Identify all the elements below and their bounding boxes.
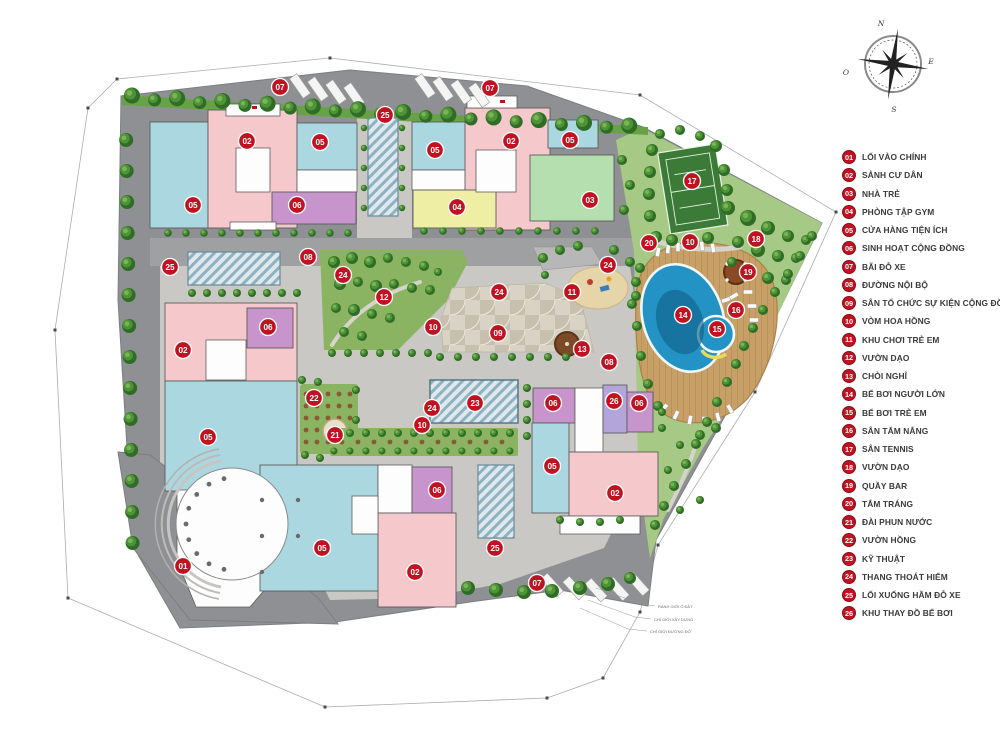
svg-text:01: 01 <box>178 562 188 571</box>
tree-icon <box>436 353 444 361</box>
tree-icon <box>236 229 244 237</box>
svg-text:15: 15 <box>712 325 722 334</box>
plan-marker-16: 16 <box>728 302 745 319</box>
tree-icon <box>122 319 136 333</box>
tree-icon <box>695 131 705 141</box>
legend-number: 02 <box>842 168 856 182</box>
plan-marker-24: 24 <box>424 400 441 417</box>
plan-marker-02: 02 <box>607 485 624 502</box>
tree-icon <box>658 408 666 416</box>
tree-icon <box>352 416 360 424</box>
legend-label: BÃI ĐỖ XE <box>862 262 906 272</box>
svg-text:16: 16 <box>731 306 741 315</box>
legend-item-08: 08ĐƯỜNG NỘI BỘ <box>842 276 1000 294</box>
tree-icon <box>619 205 629 215</box>
tree-icon <box>148 93 161 106</box>
tree-icon <box>399 145 405 151</box>
tree-icon <box>352 386 360 394</box>
legend-label: ĐÀI PHUN NƯỚC <box>862 517 932 527</box>
tree-icon <box>621 118 637 134</box>
plan-marker-21: 21 <box>327 427 344 444</box>
compass-s-label: S <box>891 105 896 114</box>
tree-icon <box>454 353 462 361</box>
tree-icon <box>331 448 338 455</box>
tree-icon <box>545 584 559 598</box>
tree-icon <box>363 448 370 455</box>
tree-icon <box>364 256 376 268</box>
legend-number: 19 <box>842 479 856 493</box>
tree-icon <box>314 378 322 386</box>
plan-marker-02: 02 <box>503 133 520 150</box>
legend-number: 17 <box>842 442 856 456</box>
tree-icon <box>434 268 442 276</box>
legend-number: 22 <box>842 533 856 547</box>
tree-icon <box>477 227 485 235</box>
tree-icon <box>490 353 498 361</box>
legend-label: CHÒI NGHỈ <box>862 371 907 381</box>
tree-icon <box>308 229 316 237</box>
svg-text:07: 07 <box>485 84 495 93</box>
legend-label: VƯỜN DẠO <box>862 462 909 472</box>
plan-marker-13: 13 <box>574 341 591 358</box>
legend-item-07: 07BÃI ĐỖ XE <box>842 258 1000 276</box>
tree-icon <box>573 241 583 251</box>
legend-item-18: 18VƯỜN DẠO <box>842 458 1000 476</box>
legend: 01LỐI VÀO CHÍNH02SẢNH CƯ DÂN03NHÀ TRẺ04P… <box>842 148 1000 623</box>
tree-icon <box>362 429 370 437</box>
tree-icon <box>748 323 758 333</box>
tree-icon <box>214 93 230 109</box>
tree-icon <box>721 184 733 196</box>
tree-icon <box>643 379 653 389</box>
tree-icon <box>643 188 655 200</box>
tree-icon <box>601 577 615 591</box>
tree-icon <box>399 205 405 211</box>
svg-text:24: 24 <box>603 261 613 270</box>
compass-rose: N E S O <box>843 19 934 114</box>
svg-text:09: 09 <box>493 329 503 338</box>
tree-icon <box>691 439 701 449</box>
tree-icon <box>721 201 735 215</box>
plan-marker-05: 05 <box>312 134 329 151</box>
tree-icon <box>644 166 656 178</box>
tree-icon <box>443 448 450 455</box>
tree-icon <box>326 229 334 237</box>
legend-item-19: 19QUẦY BAR <box>842 477 1000 495</box>
tree-icon <box>727 257 737 267</box>
plan-marker-05: 05 <box>200 429 217 446</box>
basement-ramp-south <box>478 465 514 538</box>
svg-text:06: 06 <box>548 399 558 408</box>
tree-icon <box>383 253 393 263</box>
legend-label: KHU THAY ĐỒ BỂ BƠI <box>862 608 953 618</box>
plan-marker-20: 20 <box>641 235 658 252</box>
tree-icon <box>712 397 722 407</box>
tree-icon <box>783 269 793 279</box>
legend-item-01: 01LỐI VÀO CHÍNH <box>842 148 1000 166</box>
tree-icon <box>646 144 658 156</box>
tree-icon <box>526 353 534 361</box>
tree-icon <box>553 227 561 235</box>
tree-icon <box>278 289 286 297</box>
plan-marker-11: 11 <box>564 284 581 301</box>
svg-text:08: 08 <box>604 358 614 367</box>
tree-icon <box>367 309 377 319</box>
plan-marker-24: 24 <box>335 267 352 284</box>
tree-icon <box>401 257 411 267</box>
tree-icon <box>346 252 358 264</box>
legend-item-09: 09SÂN TỔ CHỨC SỰ KIỆN CỘNG ĐỒNG <box>842 294 1000 312</box>
tree-icon <box>666 234 678 246</box>
tree-icon <box>472 353 480 361</box>
legend-item-20: 20TẮM TRÁNG <box>842 495 1000 513</box>
tree-icon <box>193 96 206 109</box>
svg-text:06: 06 <box>292 201 302 210</box>
legend-label: KHU CHƠI TRẺ EM <box>862 335 940 345</box>
compass-n-label: N <box>877 19 885 28</box>
tree-icon <box>531 112 547 128</box>
tree-icon <box>508 353 516 361</box>
tree-icon <box>120 164 134 178</box>
tree-icon <box>491 448 498 455</box>
tree-icon <box>739 341 749 351</box>
tree-icon <box>489 583 503 597</box>
legend-number: 11 <box>842 333 856 347</box>
sun-lounger <box>750 318 759 322</box>
tree-icon <box>328 256 340 268</box>
legend-label: SÂN TỔ CHỨC SỰ KIỆN CỘNG ĐỒNG <box>862 298 1000 308</box>
tree-icon <box>233 289 241 297</box>
svg-text:06: 06 <box>432 486 442 495</box>
tree-icon <box>474 429 482 437</box>
tree-icon <box>556 516 564 524</box>
tree-icon <box>616 516 624 524</box>
tree-icon <box>169 90 185 106</box>
legend-item-15: 15BỂ BƠI TRẺ EM <box>842 404 1000 422</box>
tree-icon <box>490 429 498 437</box>
tree-icon <box>427 448 434 455</box>
plan-marker-08: 08 <box>300 249 317 266</box>
tree-icon <box>596 518 604 526</box>
tree-icon <box>399 165 405 171</box>
tree-icon <box>440 107 456 123</box>
legend-number: 06 <box>842 241 856 255</box>
tree-icon <box>659 501 669 511</box>
tree-icon <box>347 448 354 455</box>
svg-text:18: 18 <box>751 235 761 244</box>
tree-icon <box>353 277 363 287</box>
tree-icon <box>305 98 321 114</box>
tree-icon <box>459 448 466 455</box>
basement-ramp-north <box>368 118 398 216</box>
svg-text:24: 24 <box>494 288 504 297</box>
tree-icon <box>395 448 402 455</box>
svg-text:24: 24 <box>338 271 348 280</box>
legend-number: 07 <box>842 260 856 274</box>
tree-icon <box>200 229 208 237</box>
tree-icon <box>407 283 417 293</box>
tree-icon <box>395 104 411 120</box>
tree-icon <box>523 416 531 424</box>
plan-marker-06: 06 <box>289 197 306 214</box>
building-block-a <box>150 104 357 230</box>
tree-icon <box>123 350 137 364</box>
tree-icon <box>182 229 190 237</box>
legend-number: 23 <box>842 552 856 566</box>
legend-number: 25 <box>842 588 856 602</box>
legend-item-03: 03NHÀ TRẺ <box>842 185 1000 203</box>
tree-icon <box>475 448 482 455</box>
legend-item-26: 26KHU THAY ĐỒ BỂ BƠI <box>842 604 1000 622</box>
tree-icon <box>378 429 386 437</box>
building-block-d <box>260 465 456 607</box>
tree-icon <box>344 349 352 357</box>
legend-number: 03 <box>842 187 856 201</box>
tree-icon <box>316 454 324 462</box>
svg-text:05: 05 <box>188 201 198 210</box>
plan-marker-26: 26 <box>606 393 623 410</box>
basement-ramp-west <box>188 252 280 285</box>
tree-icon <box>772 250 784 262</box>
plan-marker-02: 02 <box>407 564 424 581</box>
plan-marker-10: 10 <box>425 319 442 336</box>
tree-icon <box>123 381 137 395</box>
legend-number: 01 <box>842 150 856 164</box>
svg-text:06: 06 <box>263 323 273 332</box>
svg-text:25: 25 <box>490 544 500 553</box>
svg-text:12: 12 <box>379 293 389 302</box>
plan-marker-04: 04 <box>449 199 466 216</box>
tree-icon <box>124 443 138 457</box>
tree-icon <box>486 109 502 125</box>
tree-icon <box>125 505 139 519</box>
svg-text:03: 03 <box>585 196 595 205</box>
legend-number: 24 <box>842 570 856 584</box>
legend-item-02: 02SẢNH CƯ DÂN <box>842 166 1000 184</box>
tree-icon <box>122 288 136 302</box>
tree-icon <box>293 289 301 297</box>
tree-icon <box>711 423 721 433</box>
tree-icon <box>632 321 642 331</box>
legend-label: SÂN TẮM NẮNG <box>862 426 928 436</box>
tree-icon <box>331 303 341 313</box>
tree-icon <box>625 180 635 190</box>
plan-marker-05: 05 <box>427 142 444 159</box>
legend-number: 09 <box>842 296 856 310</box>
site-plan-page: N E S O RANH GIỚI Ô ĐẤTCHỈ GIỚI XÂY DỰNG… <box>0 0 1000 734</box>
tree-icon <box>627 299 637 309</box>
tree-icon <box>523 400 531 408</box>
svg-text:25: 25 <box>380 111 390 120</box>
tree-icon <box>461 581 475 595</box>
tree-icon <box>399 185 405 191</box>
tree-icon <box>272 229 280 237</box>
plan-marker-24: 24 <box>491 284 508 301</box>
tree-icon <box>710 140 722 152</box>
plan-marker-17: 17 <box>684 173 701 190</box>
tree-icon <box>125 474 139 488</box>
svg-text:24: 24 <box>427 404 437 413</box>
tree-icon <box>188 289 196 297</box>
tree-icon <box>425 285 435 295</box>
tree-icon <box>124 88 140 104</box>
tree-icon <box>218 289 226 297</box>
tree-icon <box>506 429 514 437</box>
tree-icon <box>424 349 432 357</box>
tree-icon <box>348 304 360 316</box>
tree-icon <box>650 520 660 530</box>
tree-icon <box>676 441 684 449</box>
legend-label: QUẦY BAR <box>862 481 907 491</box>
tree-icon <box>260 96 276 112</box>
tree-icon <box>458 429 466 437</box>
tree-icon <box>538 253 548 263</box>
tree-icon <box>523 432 531 440</box>
legend-item-23: 23KỸ THUẬT <box>842 550 1000 568</box>
tree-icon <box>203 289 211 297</box>
tree-icon <box>609 245 619 255</box>
tree-icon <box>762 272 774 284</box>
tree-icon <box>770 287 780 297</box>
tree-icon <box>254 229 262 237</box>
tree-icon <box>361 205 367 211</box>
tree-icon <box>284 102 297 115</box>
tree-icon <box>442 429 450 437</box>
tree-icon <box>439 227 447 235</box>
tree-icon <box>399 125 405 131</box>
legend-item-25: 25LỐI XUỐNG HẦM ĐỖ XE <box>842 586 1000 604</box>
svg-text:02: 02 <box>242 137 252 146</box>
legend-label: SẢNH CƯ DÂN <box>862 170 923 180</box>
tree-icon <box>507 448 514 455</box>
legend-item-04: 04PHÒNG TẬP GYM <box>842 203 1000 221</box>
plan-marker-24: 24 <box>600 257 617 274</box>
svg-text:07: 07 <box>532 579 542 588</box>
plan-marker-06: 06 <box>631 395 648 412</box>
plan-marker-25: 25 <box>377 107 394 124</box>
tree-icon <box>732 236 744 248</box>
plan-marker-05: 05 <box>544 458 561 475</box>
tree-icon <box>350 101 366 117</box>
plan-marker-02: 02 <box>175 342 192 359</box>
svg-text:25: 25 <box>165 263 175 272</box>
compass-w-label: O <box>843 68 849 77</box>
svg-text:22: 22 <box>309 394 319 403</box>
sun-lounger <box>748 304 757 308</box>
tree-icon <box>248 289 256 297</box>
boundary-note-2: CHỈ GIỚI XÂY DỰNG <box>654 617 693 622</box>
plan-marker-10: 10 <box>682 234 699 251</box>
tree-icon <box>389 279 399 289</box>
plan-marker-07: 07 <box>529 575 546 592</box>
tree-icon <box>655 129 665 139</box>
svg-text:02: 02 <box>410 568 420 577</box>
tree-icon <box>664 466 672 474</box>
tree-icon <box>126 536 140 550</box>
legend-number: 13 <box>842 369 856 383</box>
tree-icon <box>361 165 367 171</box>
legend-label: BỂ BƠI NGƯỜI LỚN <box>862 389 945 399</box>
legend-item-06: 06SINH HOẠT CỘNG ĐỒNG <box>842 239 1000 257</box>
tree-icon <box>782 230 794 242</box>
tree-icon <box>361 125 367 131</box>
tree-icon <box>722 377 732 387</box>
plan-marker-05: 05 <box>185 197 202 214</box>
svg-text:05: 05 <box>317 544 327 553</box>
sun-lounger <box>744 290 753 294</box>
svg-text:11: 11 <box>568 288 577 297</box>
sun-lounger <box>700 241 705 250</box>
plan-marker-18: 18 <box>748 231 765 248</box>
svg-text:21: 21 <box>330 431 340 440</box>
legend-label: VƯỜN DẠO <box>862 353 909 363</box>
legend-item-13: 13CHÒI NGHỈ <box>842 367 1000 385</box>
svg-text:26: 26 <box>609 397 619 406</box>
svg-text:07: 07 <box>275 83 285 92</box>
tree-icon <box>120 195 134 209</box>
tree-icon <box>635 263 645 273</box>
plan-marker-03: 03 <box>582 192 599 209</box>
legend-label: VÒM HOA HỒNG <box>862 316 930 326</box>
tree-icon <box>164 229 172 237</box>
tree-icon <box>346 429 354 437</box>
plan-marker-15: 15 <box>709 321 726 338</box>
legend-label: BỂ BƠI TRẺ EM <box>862 408 927 418</box>
tree-icon <box>544 353 552 361</box>
tree-icon <box>576 518 584 526</box>
svg-text:02: 02 <box>506 137 516 146</box>
legend-item-24: 24THANG THOÁT HIỂM <box>842 568 1000 586</box>
tree-icon <box>795 251 805 261</box>
tree-icon <box>515 227 523 235</box>
legend-number: 14 <box>842 387 856 401</box>
boundary-note-3: CHỈ GIỚI ĐƯỜNG ĐỎ <box>650 629 691 634</box>
tree-icon <box>376 349 384 357</box>
tree-icon <box>555 118 568 131</box>
tree-icon <box>344 229 352 237</box>
tree-icon <box>458 227 466 235</box>
boundary-note-1: RANH GIỚI Ô ĐẤT <box>658 604 693 609</box>
tree-icon <box>761 221 775 235</box>
svg-text:04: 04 <box>452 203 462 212</box>
svg-text:05: 05 <box>430 146 440 155</box>
plan-marker-01: 01 <box>175 558 192 575</box>
tree-icon <box>591 227 599 235</box>
tree-icon <box>420 227 428 235</box>
tree-icon <box>624 572 636 584</box>
svg-text:17: 17 <box>687 177 697 186</box>
tree-icon <box>263 289 271 297</box>
svg-text:10: 10 <box>685 238 695 247</box>
tree-icon <box>239 99 252 112</box>
plan-marker-06: 06 <box>545 395 562 412</box>
tree-icon <box>702 417 712 427</box>
tree-icon <box>573 581 587 595</box>
svg-text:02: 02 <box>610 489 620 498</box>
legend-item-10: 10VÒM HOA HỒNG <box>842 312 1000 330</box>
plan-marker-07: 07 <box>272 79 289 96</box>
tree-icon <box>731 359 741 369</box>
tree-icon <box>408 349 416 357</box>
legend-number: 16 <box>842 424 856 438</box>
tree-icon <box>465 113 478 126</box>
plan-marker-10: 10 <box>414 417 431 434</box>
tree-icon <box>121 226 135 240</box>
legend-label: VƯỜN HỒNG <box>862 535 916 545</box>
legend-label: PHÒNG TẬP GYM <box>862 207 934 217</box>
svg-text:13: 13 <box>577 345 587 354</box>
tree-icon <box>339 327 349 337</box>
